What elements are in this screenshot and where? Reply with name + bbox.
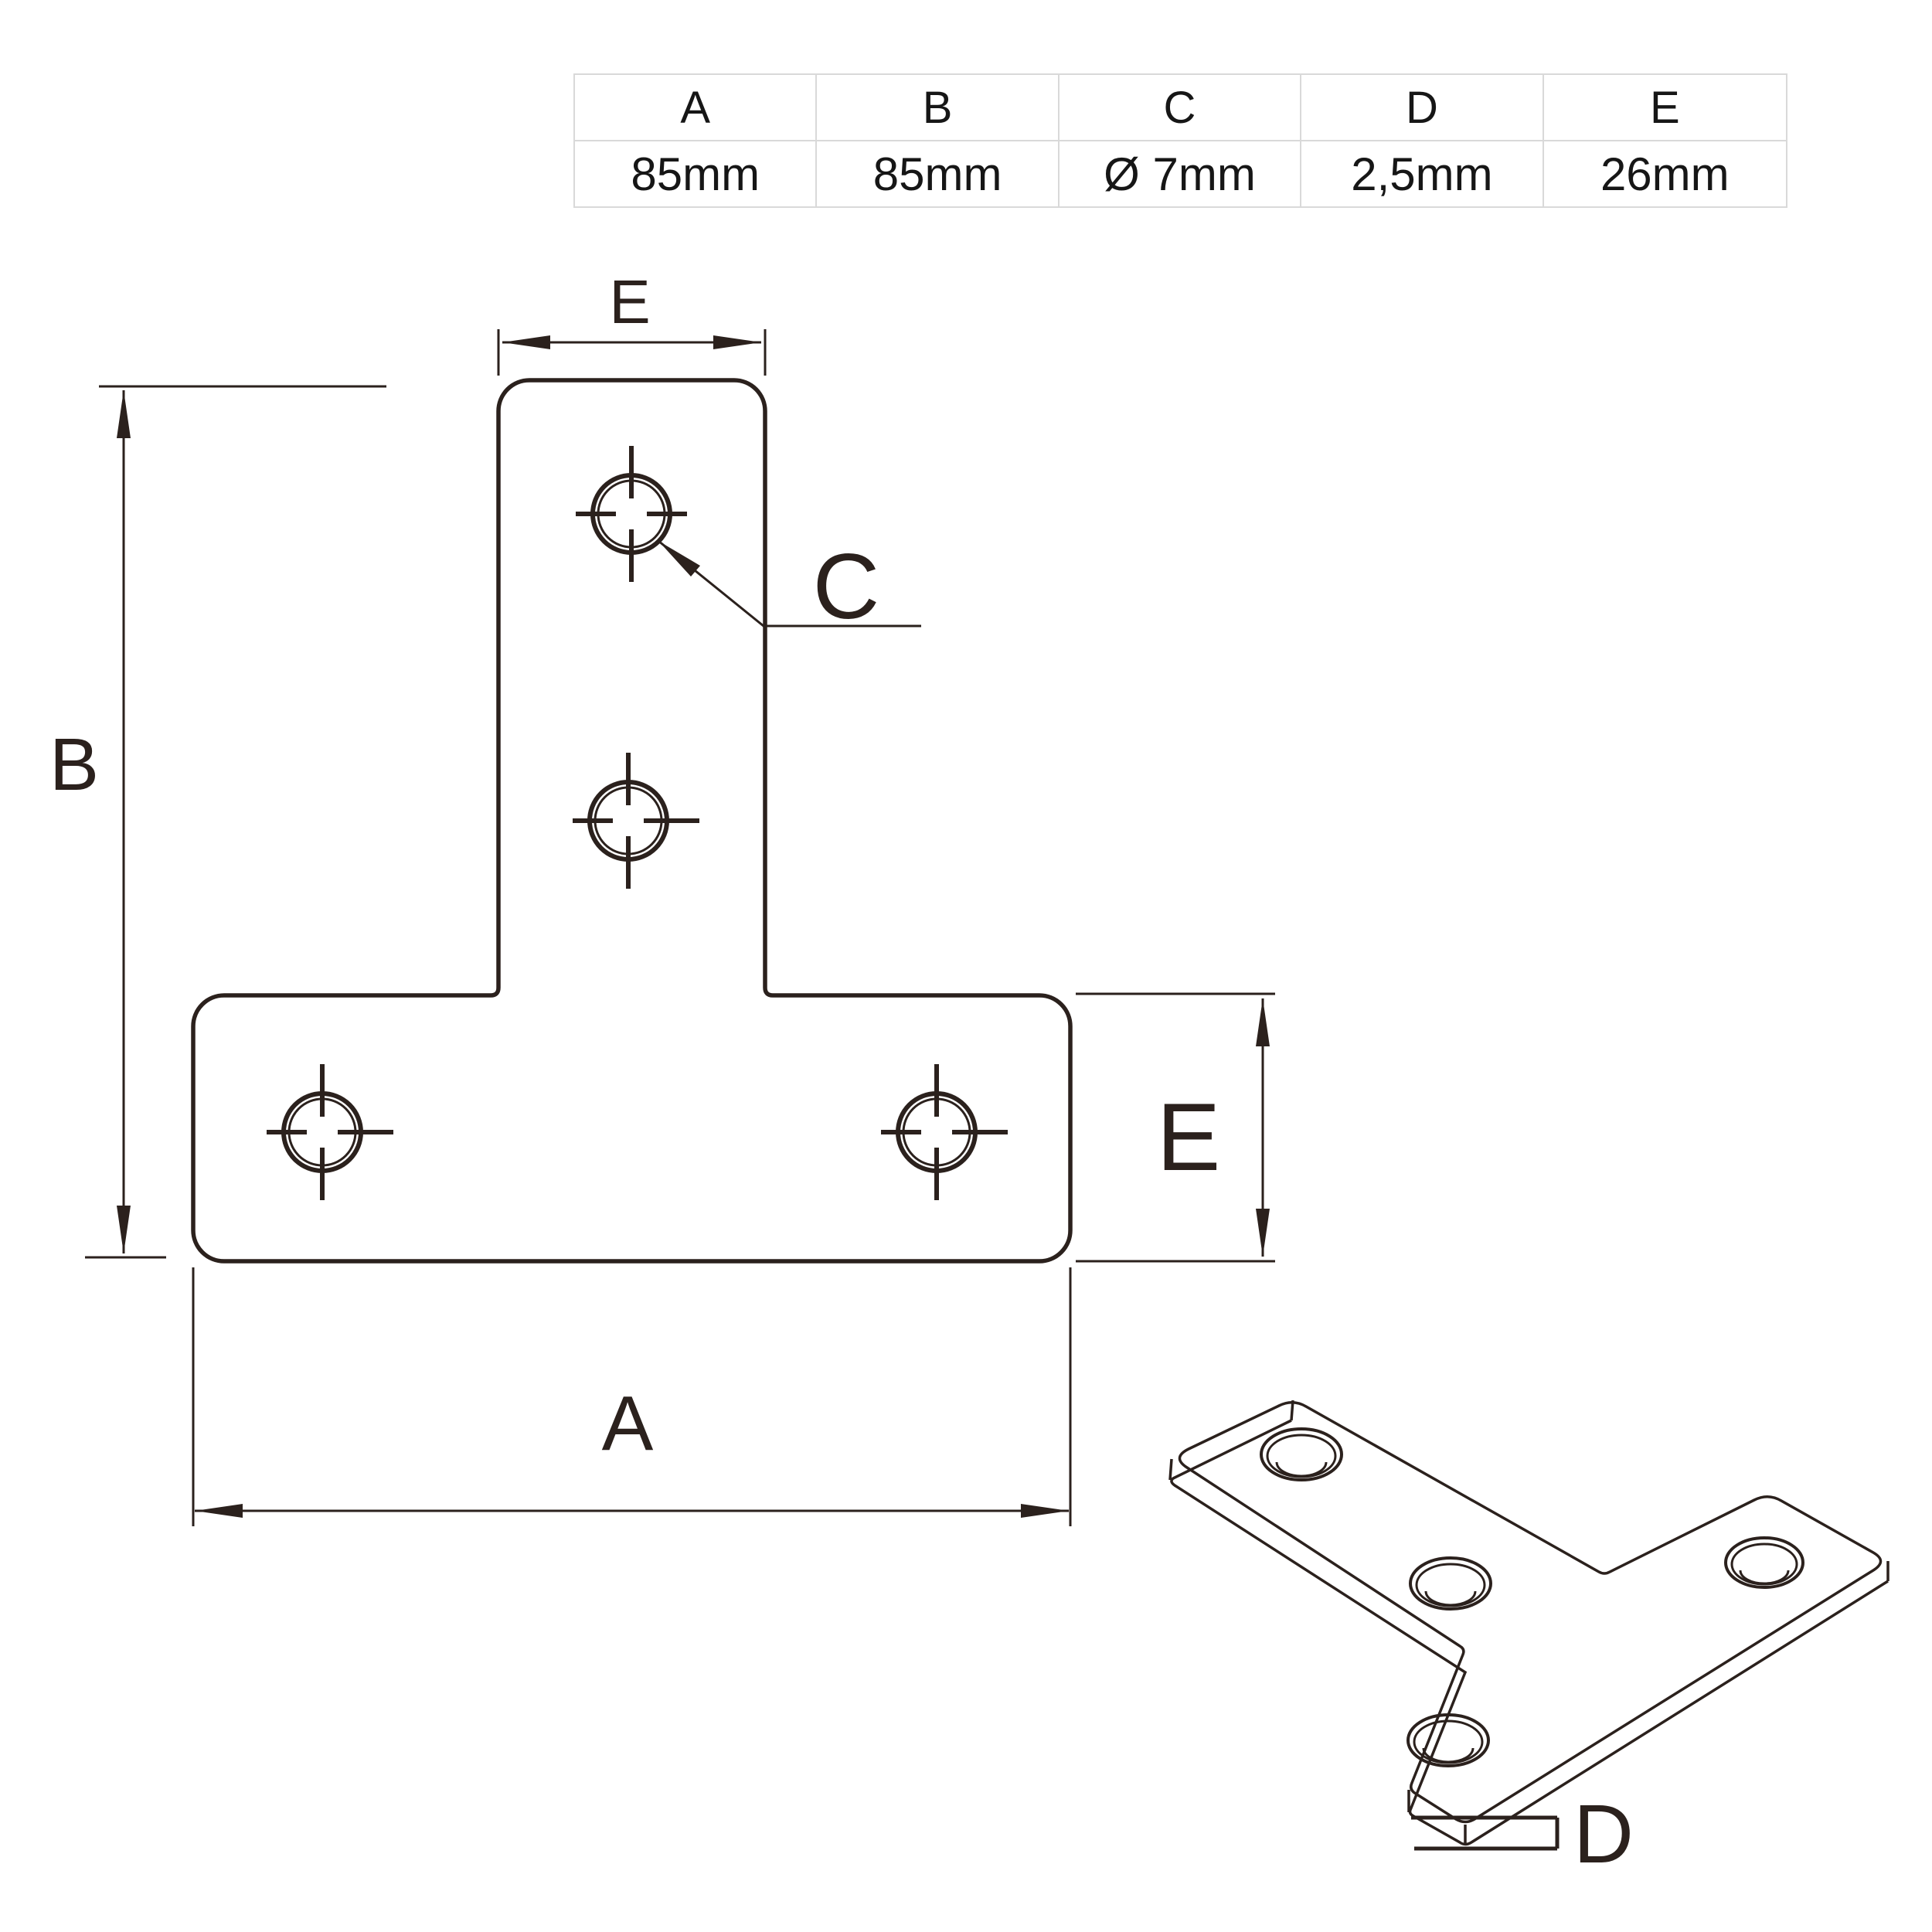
arrowhead-down-icon [1256, 1209, 1270, 1257]
front-hole-stem-top [576, 446, 687, 582]
front-plate-outline [193, 380, 1070, 1261]
callout-hole-diameter: C [658, 535, 921, 638]
iso-view: D [1170, 1400, 1888, 1880]
iso-hole-stem-mid [1410, 1558, 1491, 1609]
dim-overall-height-left: B [49, 386, 386, 1257]
iso-hole-bar-left [1261, 1429, 1342, 1480]
technical-drawing: E B C A [0, 0, 1932, 1932]
front-hole-stem-mid [573, 753, 699, 889]
arrowhead-right-icon [1021, 1504, 1069, 1518]
dim-label-d: D [1573, 1787, 1634, 1880]
dim-label-a: A [602, 1380, 654, 1467]
arrowhead-up-icon [1256, 998, 1270, 1046]
dim-overall-width-bottom: A [193, 1267, 1070, 1526]
iso-hole-stem-tip [1408, 1715, 1488, 1766]
arrowhead-up-icon [117, 390, 131, 438]
iso-plate-top-face [1179, 1403, 1880, 1822]
arrowhead-left-icon [502, 335, 550, 349]
drawing-sheet: A B C D E 85mm 85mm Ø 7mm 2,5mm 26mm [0, 0, 1932, 1932]
arrowhead-down-icon [117, 1206, 131, 1253]
arrowhead-leader-icon [658, 541, 700, 577]
dim-label-b: B [49, 723, 99, 806]
front-hole-bar-right [881, 1064, 1008, 1200]
front-view: E B C A [49, 267, 1275, 1526]
front-hole-bar-left [267, 1064, 393, 1200]
iso-hole-bar-right [1726, 1538, 1803, 1587]
dim-label-e-right: E [1157, 1084, 1221, 1191]
arrowhead-left-icon [195, 1504, 243, 1518]
arrowhead-right-icon [713, 335, 761, 349]
dim-label-e-top: E [609, 267, 650, 336]
dim-bar-height-right: E [1076, 994, 1275, 1261]
dim-stem-width-top: E [498, 267, 765, 376]
dim-label-c: C [813, 535, 880, 638]
